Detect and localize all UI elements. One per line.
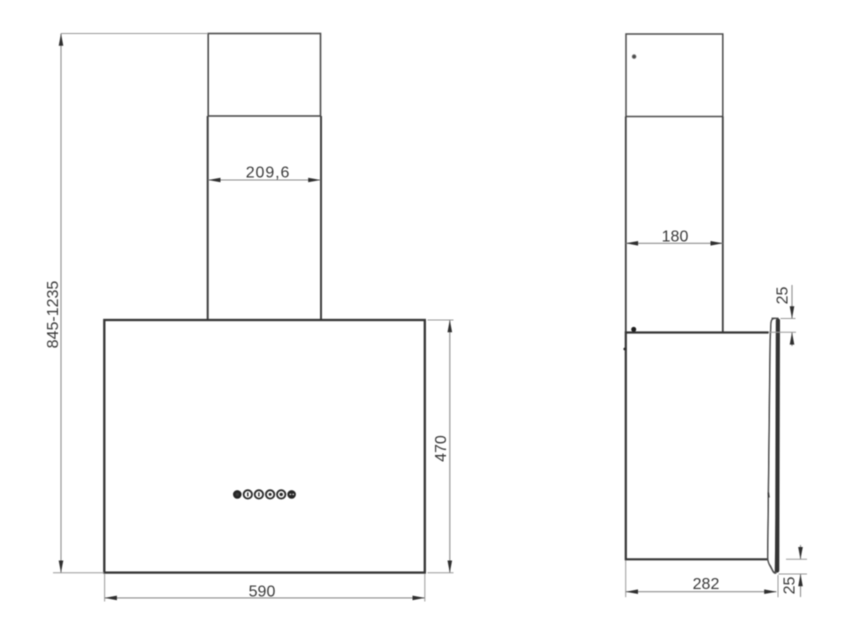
svg-text:180: 180 — [662, 228, 689, 245]
svg-text:470: 470 — [433, 435, 450, 462]
svg-text:282: 282 — [693, 576, 720, 593]
svg-text:590: 590 — [249, 584, 276, 601]
svg-text:25: 25 — [775, 287, 792, 305]
svg-text:25: 25 — [782, 577, 799, 595]
svg-text:845-1235: 845-1235 — [45, 281, 62, 349]
svg-text:209,6: 209,6 — [246, 165, 291, 182]
